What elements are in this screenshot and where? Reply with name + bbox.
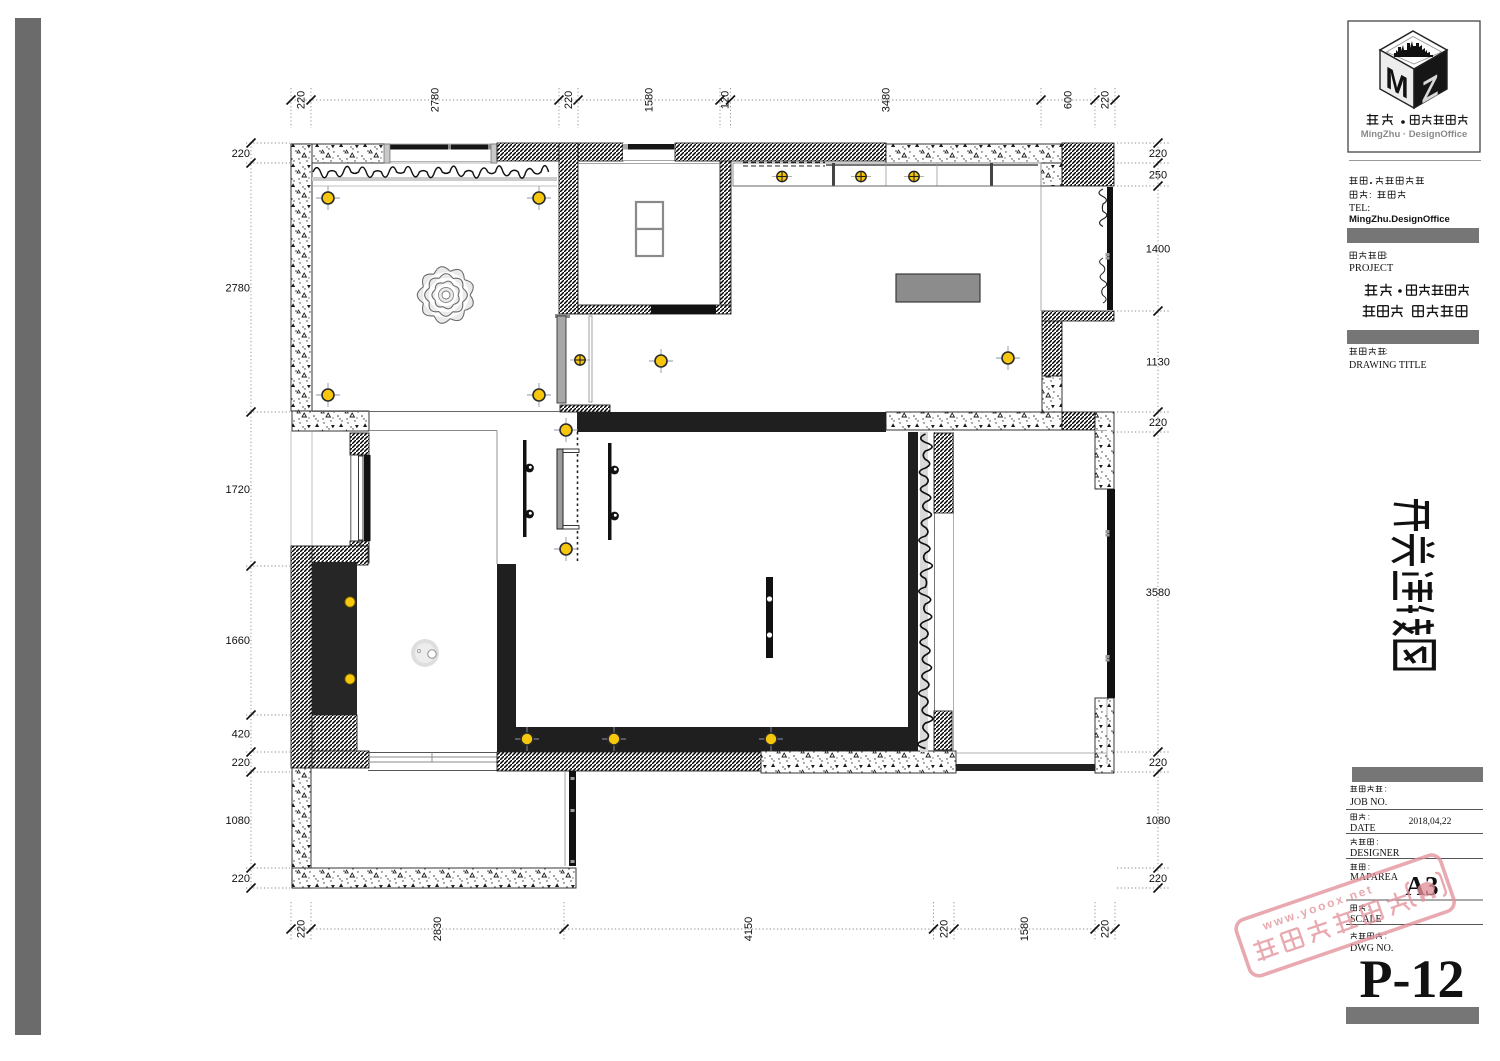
svg-text:2830: 2830: [432, 917, 444, 941]
svg-text:2780: 2780: [430, 88, 442, 112]
svg-text:220: 220: [563, 91, 575, 109]
svg-text:1080: 1080: [226, 815, 250, 827]
svg-text:250: 250: [1149, 170, 1167, 182]
svg-text::: :: [1368, 813, 1370, 822]
svg-text:420: 420: [232, 729, 250, 741]
svg-text:220: 220: [232, 148, 250, 160]
svg-text:1580: 1580: [644, 88, 656, 112]
svg-text:PROJECT: PROJECT: [1349, 263, 1394, 274]
svg-text:2780: 2780: [226, 283, 250, 295]
svg-text::: :: [1385, 785, 1387, 794]
svg-text::: :: [1385, 250, 1387, 260]
svg-text:2018,04,22: 2018,04,22: [1409, 817, 1452, 827]
svg-text:4150: 4150: [743, 917, 755, 941]
svg-text:220: 220: [232, 757, 250, 769]
svg-text:220: 220: [1149, 757, 1167, 769]
svg-text:JOB NO.: JOB NO.: [1350, 797, 1387, 808]
svg-text::: :: [1368, 863, 1370, 872]
svg-text:MingZhu · DesignOffice: MingZhu · DesignOffice: [1361, 129, 1468, 140]
svg-text:DATE: DATE: [1350, 823, 1376, 834]
svg-text::: :: [1376, 838, 1378, 847]
svg-text:220: 220: [939, 920, 951, 938]
svg-text:DRAWING TITLE: DRAWING TITLE: [1349, 360, 1427, 371]
svg-text:1660: 1660: [226, 635, 250, 647]
svg-text:220: 220: [1149, 148, 1167, 160]
svg-text:220: 220: [232, 873, 250, 885]
svg-text:600: 600: [1063, 91, 1075, 109]
svg-text:220: 220: [1149, 417, 1167, 429]
svg-text:1580: 1580: [1019, 917, 1031, 941]
svg-text:3480: 3480: [881, 88, 893, 112]
svg-text:220: 220: [1149, 873, 1167, 885]
svg-text:1720: 1720: [226, 484, 250, 496]
svg-text:220: 220: [1100, 920, 1112, 938]
svg-text:220: 220: [296, 920, 308, 938]
svg-text:MingZhu.DesignOffice: MingZhu.DesignOffice: [1349, 214, 1450, 225]
svg-text:1130: 1130: [1146, 357, 1170, 369]
svg-text:220: 220: [1100, 91, 1112, 109]
svg-text:220: 220: [296, 91, 308, 109]
svg-text:TEL:: TEL:: [1349, 203, 1370, 214]
svg-text:3580: 3580: [1146, 587, 1170, 599]
svg-text:P-12: P-12: [1360, 949, 1465, 1009]
svg-text::: :: [1385, 346, 1387, 356]
svg-text::: :: [1369, 190, 1372, 200]
svg-text:1400: 1400: [1146, 244, 1170, 256]
svg-text:120: 120: [720, 91, 732, 109]
svg-text:1080: 1080: [1146, 815, 1170, 827]
svg-text:DESIGNER: DESIGNER: [1350, 848, 1400, 859]
